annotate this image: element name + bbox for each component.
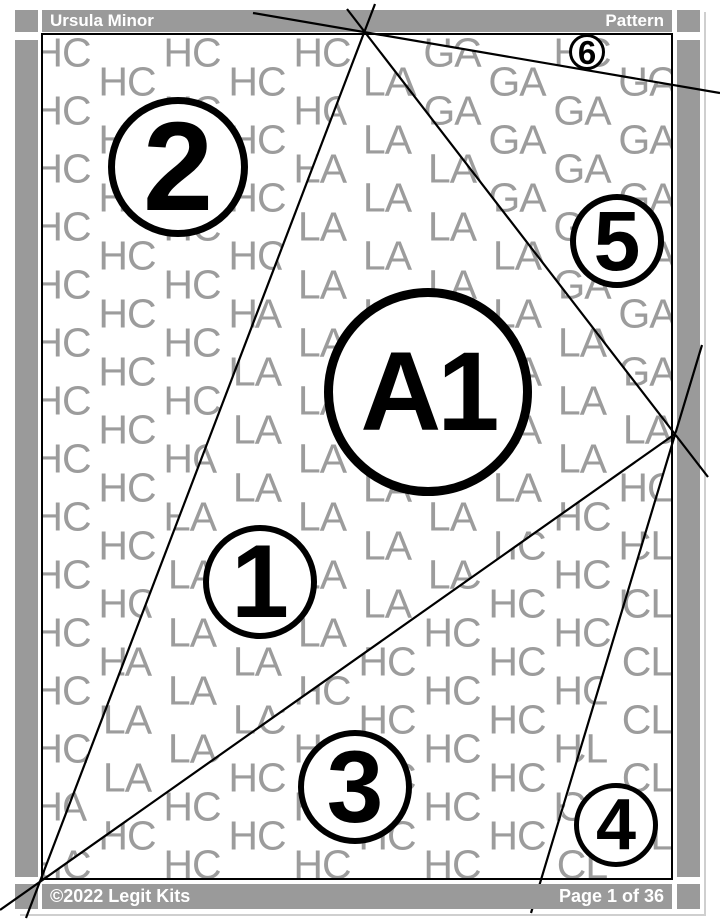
pattern-page: Ursula Minor Pattern HCHCHCHCHCHCHCHCHCH… bbox=[0, 0, 720, 922]
watermark-code: GA bbox=[618, 294, 673, 335]
watermark-code: HC bbox=[41, 149, 91, 190]
watermark-code: HC bbox=[293, 33, 350, 74]
watermark-code: HC bbox=[228, 758, 285, 799]
piece-circle-1: 1 bbox=[203, 525, 317, 639]
watermark-code: LA bbox=[298, 497, 346, 538]
watermark-code: HC bbox=[423, 671, 480, 712]
copyright-label: ©2022 Legit Kits bbox=[50, 886, 190, 907]
watermark-code: HC bbox=[41, 729, 91, 770]
watermark-code: LA bbox=[363, 584, 411, 625]
watermark-code: HC bbox=[228, 816, 285, 857]
watermark-code: HC bbox=[488, 758, 545, 799]
watermark-code: GA bbox=[553, 91, 610, 132]
watermark-code: HC bbox=[228, 62, 285, 103]
watermark-code: HC bbox=[423, 845, 480, 881]
watermark-code: LA bbox=[558, 439, 606, 480]
watermark-code: LA bbox=[428, 207, 476, 248]
piece-number: 4 bbox=[596, 789, 636, 861]
watermark-code: HC bbox=[41, 381, 91, 422]
page-indicator: Page 1 of 36 bbox=[559, 886, 664, 907]
watermark-code: HC bbox=[41, 323, 91, 364]
trim-strip-left bbox=[15, 40, 38, 877]
watermark-code: CL bbox=[622, 700, 672, 741]
watermark-code: HC bbox=[41, 207, 91, 248]
watermark-code: LA bbox=[233, 468, 281, 509]
watermark-code: HC bbox=[163, 33, 220, 74]
watermark-code: LA bbox=[363, 120, 411, 161]
watermark-code: HC bbox=[423, 729, 480, 770]
page-edge-bottom bbox=[20, 914, 706, 916]
piece-circle-2: 2 bbox=[108, 97, 248, 237]
watermark-code: HC bbox=[41, 439, 91, 480]
watermark-code: GA bbox=[618, 120, 673, 161]
trim-strip-right bbox=[677, 40, 700, 877]
watermark-code: LA bbox=[168, 613, 216, 654]
trim-square-bottom-left bbox=[15, 884, 38, 909]
piece-circle-5: 5 bbox=[570, 194, 664, 288]
watermark-code: HC bbox=[41, 91, 91, 132]
piece-circle-3: 3 bbox=[298, 730, 412, 844]
piece-number: 2 bbox=[143, 104, 213, 230]
watermark-code: LA bbox=[363, 178, 411, 219]
trim-square-bottom-right bbox=[677, 884, 700, 909]
watermark-code: HC bbox=[41, 555, 91, 596]
watermark-code: HC bbox=[488, 816, 545, 857]
piece-number: 5 bbox=[594, 199, 641, 283]
piece-circle-4: 4 bbox=[574, 783, 658, 867]
watermark-code: HC bbox=[98, 352, 155, 393]
piece-number: A1 bbox=[360, 336, 495, 448]
watermark-code: HC bbox=[41, 265, 91, 306]
watermark-code: GA bbox=[488, 62, 545, 103]
watermark-code: HC bbox=[163, 265, 220, 306]
watermark-code: HC bbox=[488, 642, 545, 683]
watermark-code: HC bbox=[163, 787, 220, 828]
watermark-code: HC bbox=[163, 323, 220, 364]
watermark-code: HC bbox=[423, 613, 480, 654]
watermark-code: HC bbox=[98, 468, 155, 509]
watermark-code: GA bbox=[488, 120, 545, 161]
piece-number: 6 bbox=[578, 36, 596, 69]
footer-bar: ©2022 Legit Kits Page 1 of 36 bbox=[42, 884, 672, 909]
trim-square-top-right bbox=[677, 10, 700, 32]
watermark-code: HC bbox=[98, 294, 155, 335]
watermark-code: HC bbox=[488, 584, 545, 625]
watermark-code: HC bbox=[41, 497, 91, 538]
watermark-code: HC bbox=[488, 700, 545, 741]
piece-number: 1 bbox=[231, 530, 289, 634]
watermark-code: CL bbox=[622, 642, 672, 683]
watermark-code: CL bbox=[622, 584, 672, 625]
watermark-code: LA bbox=[558, 381, 606, 422]
trim-square-top-left bbox=[15, 10, 38, 32]
watermark-code: GA bbox=[553, 149, 610, 190]
watermark-code: HC bbox=[41, 613, 91, 654]
watermark-code: LA bbox=[233, 642, 281, 683]
watermark-code: HC bbox=[41, 671, 91, 712]
page-edge-right bbox=[704, 12, 706, 916]
pattern-title: Ursula Minor bbox=[50, 11, 154, 31]
watermark-code: LA bbox=[363, 526, 411, 567]
header-right-label: Pattern bbox=[605, 11, 664, 31]
watermark-code: LA bbox=[298, 613, 346, 654]
header-bar: Ursula Minor Pattern bbox=[42, 10, 672, 32]
watermark-code: HC bbox=[98, 236, 155, 277]
watermark-code: HC bbox=[163, 845, 220, 881]
watermark-code: HC bbox=[41, 33, 91, 74]
watermark-code: LA bbox=[103, 758, 151, 799]
watermark-code: HC bbox=[98, 410, 155, 451]
watermark-code: HC bbox=[98, 526, 155, 567]
watermark-code: HC bbox=[553, 613, 610, 654]
watermark-code: LA bbox=[168, 671, 216, 712]
watermark-code: LA bbox=[493, 468, 541, 509]
piece-circle-6: 6 bbox=[569, 34, 605, 70]
watermark-code: LA bbox=[428, 497, 476, 538]
watermark-code: LA bbox=[233, 410, 281, 451]
watermark-code: LA bbox=[103, 700, 151, 741]
watermark-code: HC bbox=[163, 381, 220, 422]
watermark-code: LA bbox=[363, 236, 411, 277]
watermark-code: HC bbox=[293, 845, 350, 881]
watermark-code: LA bbox=[298, 207, 346, 248]
piece-circle-A1: A1 bbox=[324, 288, 532, 496]
piece-number: 3 bbox=[327, 736, 384, 838]
watermark-code: LA bbox=[298, 265, 346, 306]
watermark-code: HC bbox=[423, 787, 480, 828]
watermark-code: HC bbox=[553, 555, 610, 596]
